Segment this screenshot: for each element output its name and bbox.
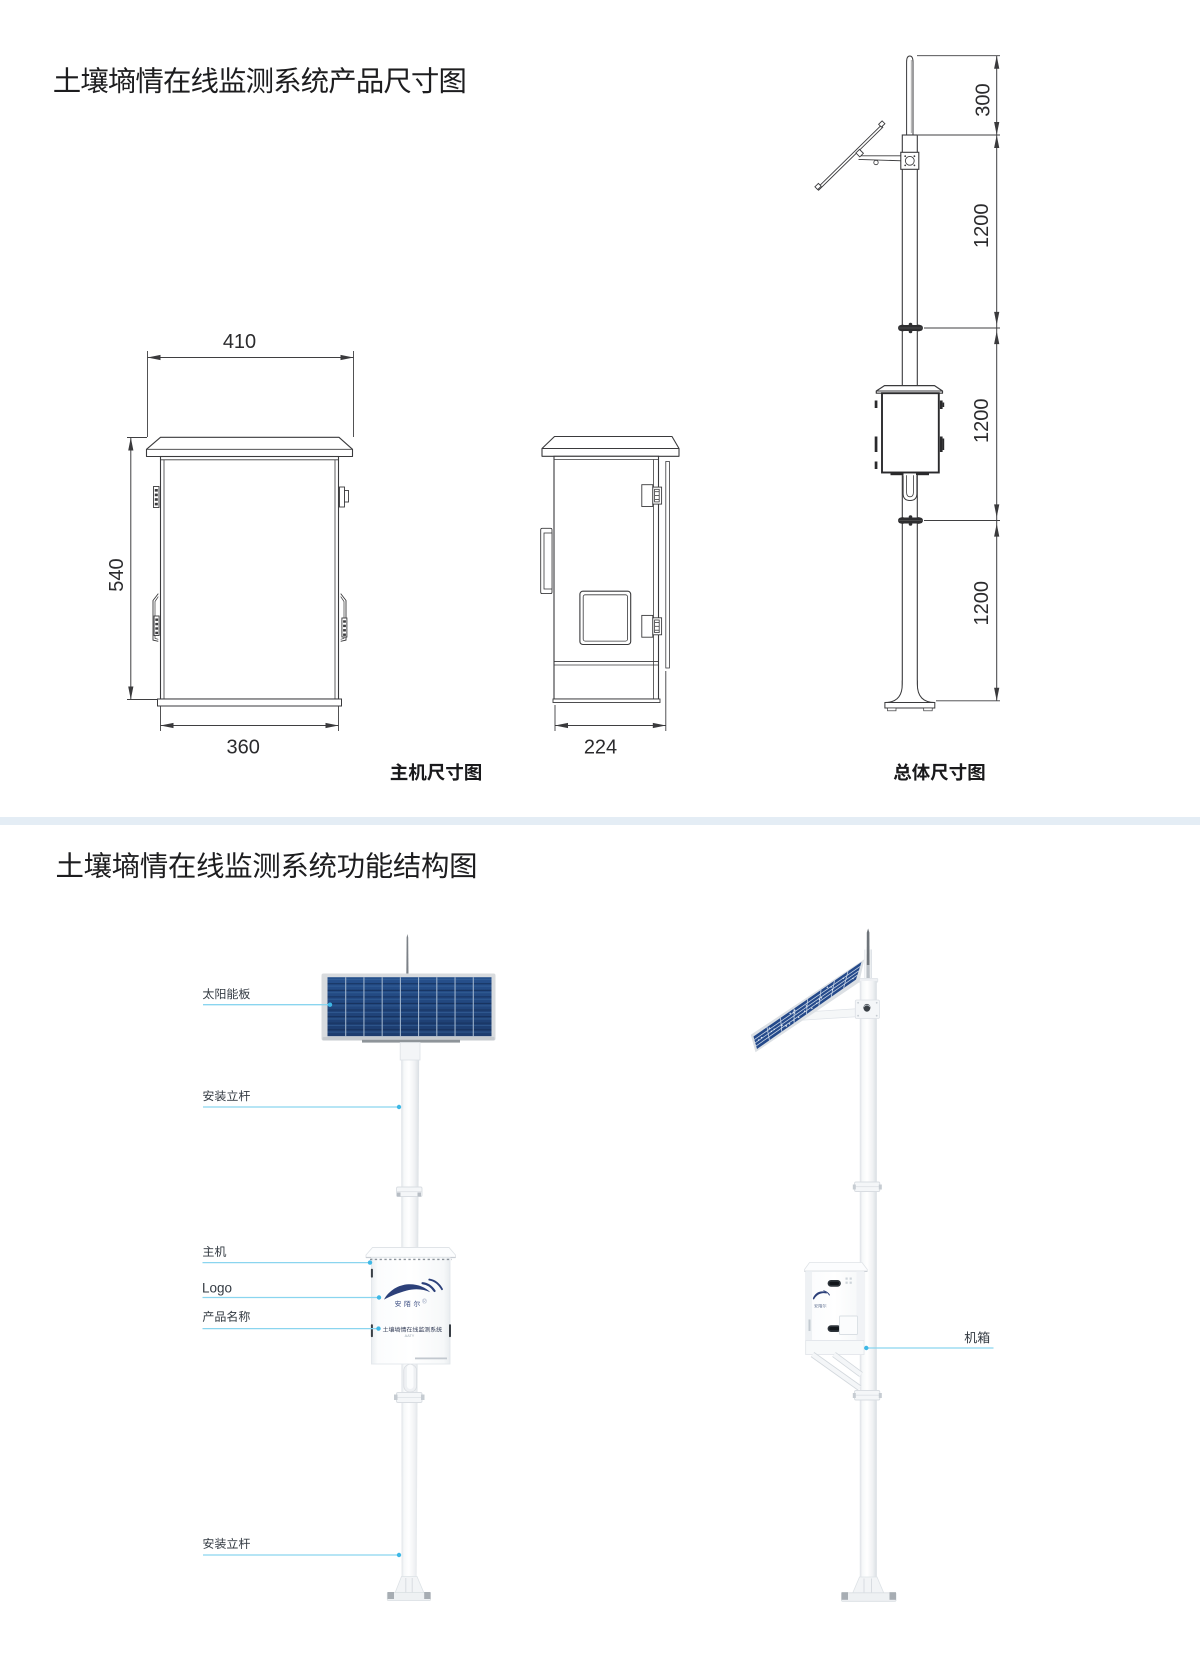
svg-text:224: 224 xyxy=(584,737,617,759)
svg-text:540: 540 xyxy=(106,558,128,591)
svg-text:1200: 1200 xyxy=(971,581,993,626)
svg-text:300: 300 xyxy=(972,83,994,116)
svg-text:410: 410 xyxy=(223,331,256,353)
svg-text:360: 360 xyxy=(227,737,260,759)
svg-text:Logo: Logo xyxy=(202,1281,232,1296)
svg-text:1200: 1200 xyxy=(971,203,993,248)
svg-text:®: ® xyxy=(422,1299,427,1306)
svg-text:AATY: AATY xyxy=(405,1334,415,1338)
svg-text:1200: 1200 xyxy=(971,398,993,443)
